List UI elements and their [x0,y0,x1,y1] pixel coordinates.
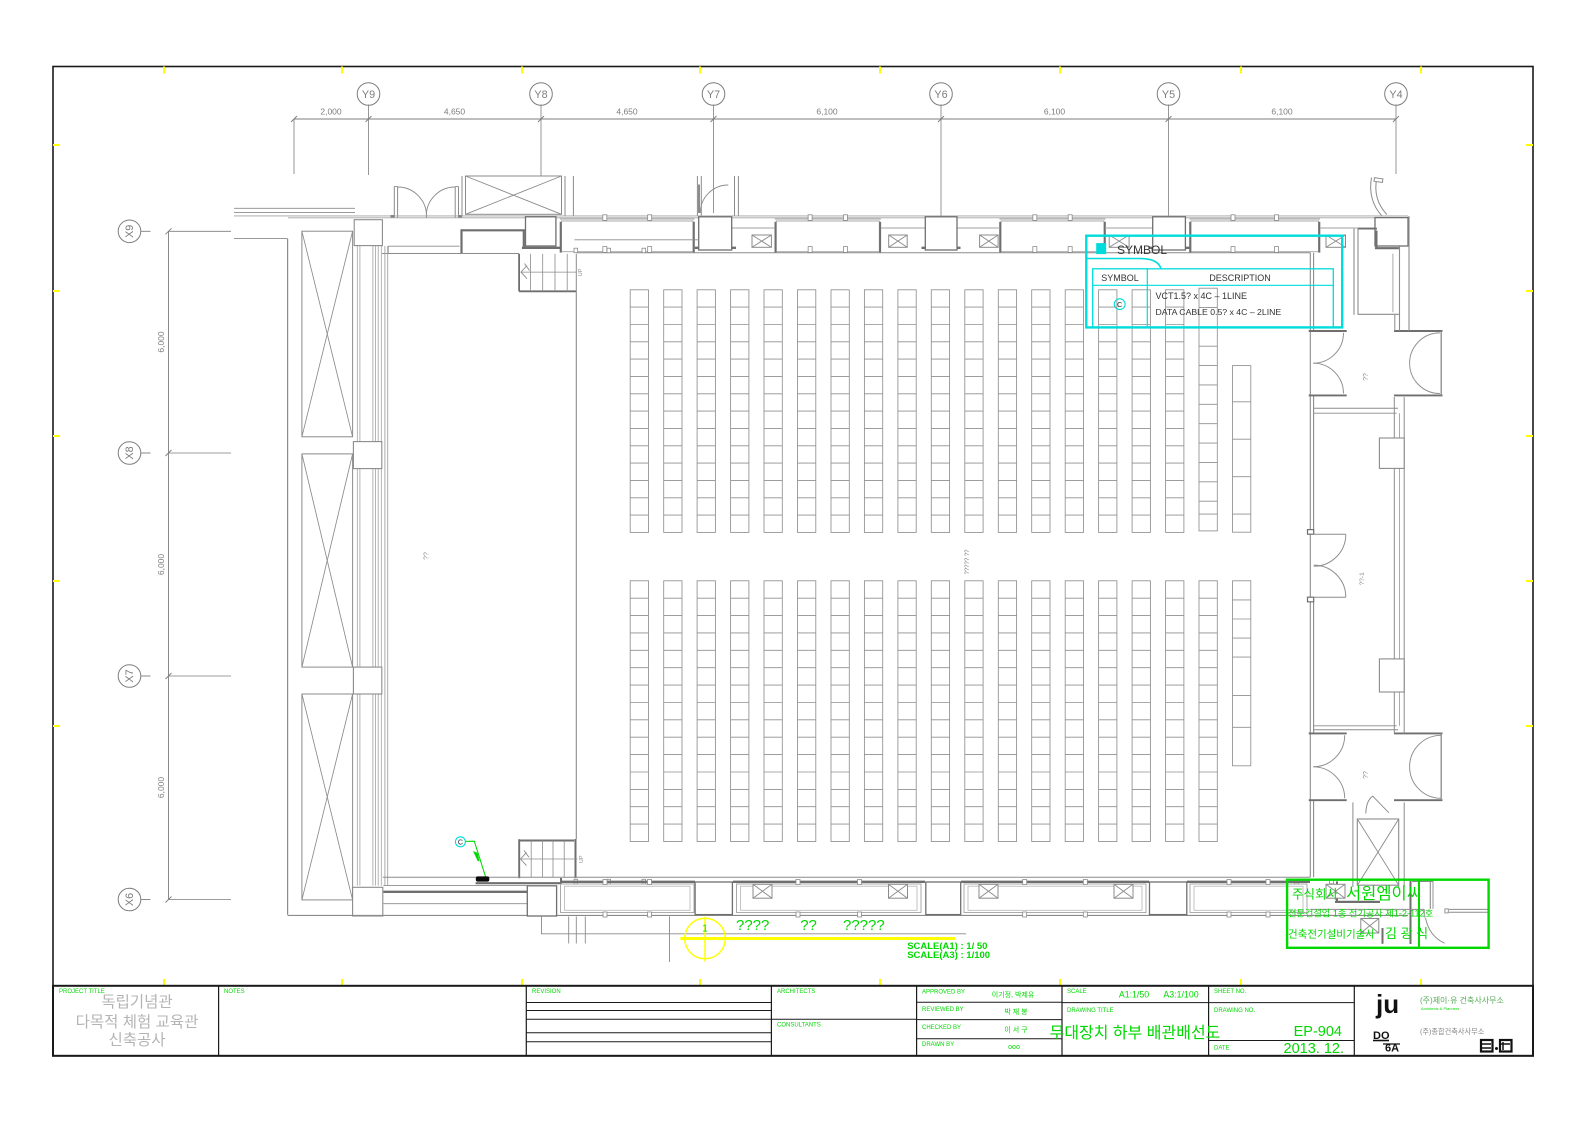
svg-text:Y5: Y5 [1162,89,1175,101]
svg-text:1: 1 [702,924,708,935]
svg-text:A3:1/100: A3:1/100 [1163,990,1198,1000]
svg-text:??: ?? [800,917,817,934]
svg-text:UP: UP [579,855,585,863]
svg-text:APPROVED BY: APPROVED BY [922,989,965,995]
svg-text:?????: ????? [843,917,885,934]
svg-text:4,650: 4,650 [616,107,638,117]
svg-text:CONSULTANTS: CONSULTANTS [777,1023,821,1029]
svg-text:C: C [1117,302,1122,309]
svg-text:SCALE(A3) : 1/100: SCALE(A3) : 1/100 [907,950,990,961]
svg-text:6,000: 6,000 [156,554,166,576]
svg-text:Y7: Y7 [707,89,720,101]
svg-text:VCT1.5? x 4C – 1LINE: VCT1.5? x 4C – 1LINE [1156,291,1248,301]
svg-text:6,100: 6,100 [1044,107,1066,117]
svg-text:REVIEWED BY: REVIEWED BY [922,1007,964,1013]
svg-text:6,100: 6,100 [816,107,838,117]
svg-text:2,000: 2,000 [320,107,342,117]
svg-text:ooo: ooo [1008,1044,1020,1051]
svg-text:NOTES: NOTES [224,989,245,995]
svg-text:건축전기설비기술사: 건축전기설비기술사 [1288,929,1375,941]
svg-text:이기정, 박제유: 이기정, 박제유 [992,990,1035,999]
svg-text:서원엠이씨: 서원엠이씨 [1346,884,1422,903]
svg-text:??: ?? [1363,771,1370,779]
svg-text:무대장치 하부 배관배선도: 무대장치 하부 배관배선도 [1050,1024,1221,1042]
svg-text:X8: X8 [124,446,136,459]
svg-text:A1:1/50: A1:1/50 [1119,990,1149,1000]
svg-text:DRAWING TITLE: DRAWING TITLE [1067,1008,1114,1014]
svg-text:DESCRIPTION: DESCRIPTION [1209,273,1271,283]
svg-text:2013. 12.: 2013. 12. [1284,1041,1344,1057]
svg-text:ARCHITECTS: ARCHITECTS [777,989,815,995]
svg-text:6,000: 6,000 [156,777,166,799]
svg-text:????? ??: ????? ?? [965,549,971,575]
svg-text:PROJECT TITLE: PROJECT TITLE [59,989,105,995]
svg-text:DRAWING NO.: DRAWING NO. [1214,1008,1255,1014]
svg-text:X7: X7 [124,669,136,682]
svg-text:SYMBOL: SYMBOL [1101,273,1139,283]
svg-text:DATE: DATE [1214,1046,1230,1052]
svg-text:X6: X6 [124,893,136,906]
svg-text:신축공사: 신축공사 [108,1031,165,1049]
svg-text:4,650: 4,650 [444,107,466,117]
svg-text:????: ???? [736,917,769,934]
svg-text:CHECKED BY: CHECKED BY [922,1025,961,1031]
svg-text:REVISION: REVISION [532,989,561,995]
svg-text:Architects & Planners: Architects & Planners [1421,1006,1459,1011]
svg-text:C: C [458,840,463,847]
svg-text:6,100: 6,100 [1271,107,1293,117]
svg-text:김 광 식: 김 광 식 [1385,926,1428,941]
svg-text:Y6: Y6 [934,89,947,101]
svg-text:SHEET NO.: SHEET NO. [1214,989,1247,995]
svg-text:??: ?? [1363,373,1370,381]
svg-text:DATA CABLE 0.5? x 4C – 2: DATA CABLE 0.5? x 4C – 2LINE [1156,307,1282,317]
svg-text:이 서 구: 이 서 구 [1004,1025,1028,1034]
svg-text:SCALE: SCALE [1067,989,1087,995]
svg-text:EP-904: EP-904 [1294,1024,1342,1040]
svg-text:다목적 체험 교육관: 다목적 체험 교육관 [76,1013,199,1031]
svg-text:ju: ju [1375,989,1399,1019]
svg-text:DRAWN BY: DRAWN BY [922,1042,954,1048]
svg-text:(주)제이·유 건축사사무소: (주)제이·유 건축사사무소 [1420,995,1504,1005]
svg-text:Y9: Y9 [362,89,375,101]
svg-text:(주)종합건축사사무소: (주)종합건축사사무소 [1420,1027,1485,1036]
svg-text:6,000: 6,000 [156,331,166,353]
svg-text:Y8: Y8 [534,89,547,101]
svg-text:전문건설업 1종 전기공사 제1-2-112호: 전문건설업 1종 전기공사 제1-2-112호 [1288,908,1433,919]
svg-text:독립기념관: 독립기념관 [101,993,172,1011]
svg-text:박 재 봉: 박 재 봉 [1004,1007,1028,1016]
svg-text:??: ?? [424,552,431,560]
svg-text:??-1: ??-1 [1359,572,1366,585]
svg-text:주식회사: 주식회사 [1292,888,1339,902]
svg-text:X9: X9 [124,225,136,238]
svg-text:SYMBOL: SYMBOL [1117,243,1167,257]
svg-text:UP: UP [578,268,584,276]
svg-text:Y4: Y4 [1389,89,1402,101]
